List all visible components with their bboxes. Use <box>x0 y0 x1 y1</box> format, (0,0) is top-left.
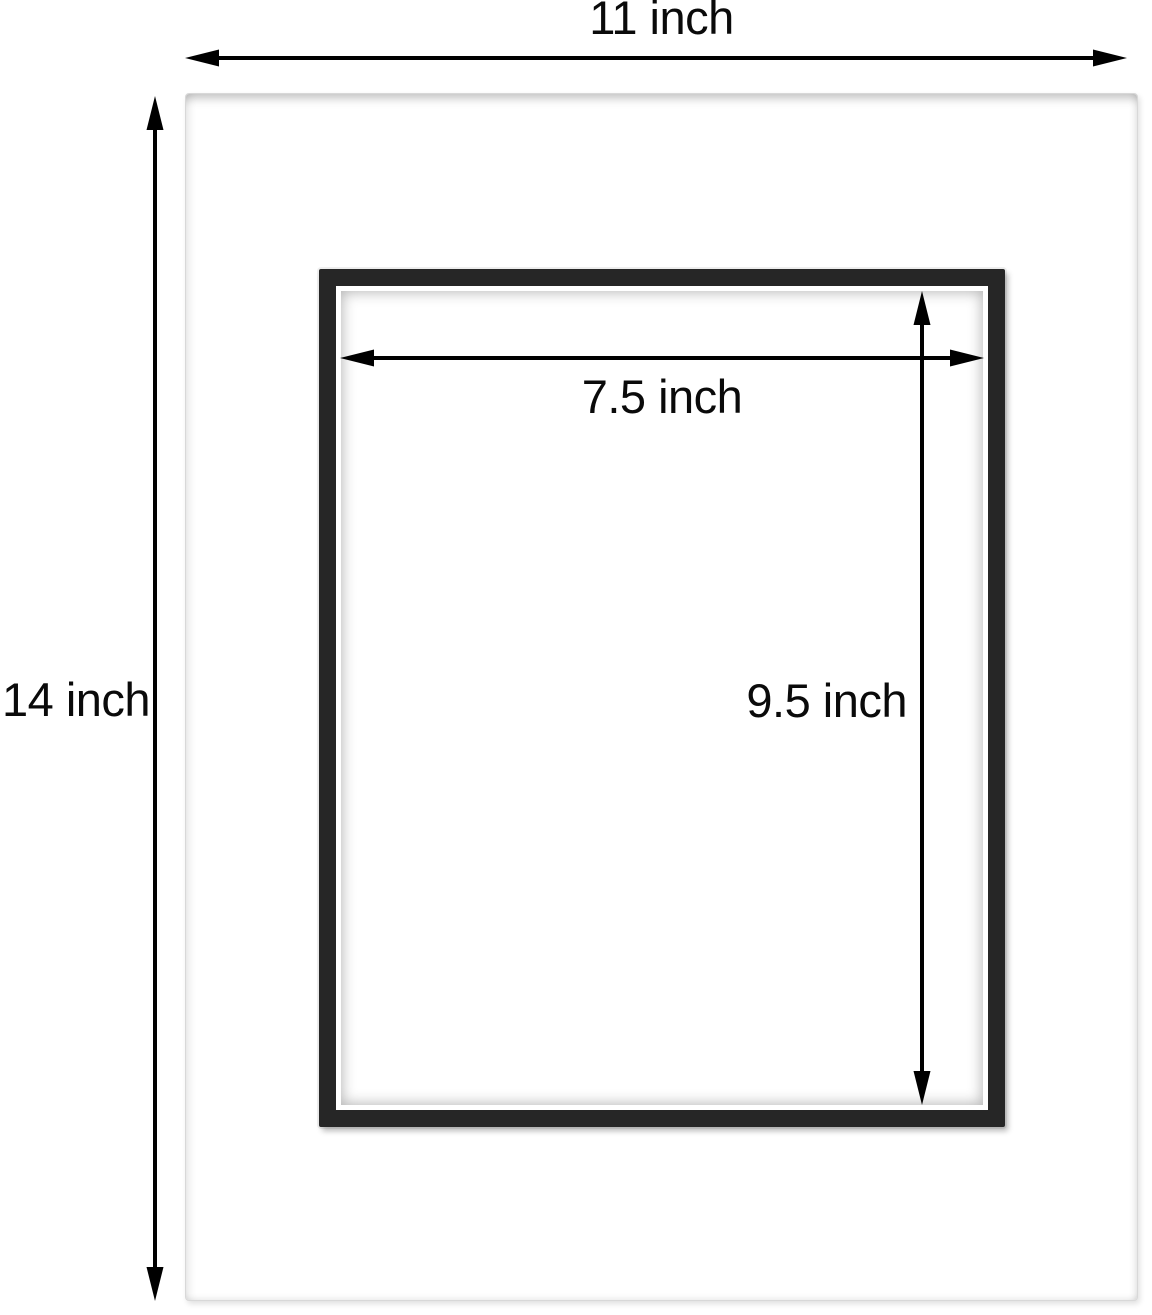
opening-width-label: 7.5 inch <box>319 373 1005 420</box>
opening-height-label: 9.5 inch <box>607 677 907 724</box>
outer-width-dimension-arrow <box>185 44 1127 72</box>
outer-height-label: 14 inch <box>2 676 152 723</box>
outer-width-label: 11 inch <box>185 0 1138 41</box>
mat-dimension-diagram: 11 inch 14 inch 7.5 inch 9.5 inch <box>0 0 1152 1315</box>
opening-width-dimension-arrow <box>340 344 984 372</box>
